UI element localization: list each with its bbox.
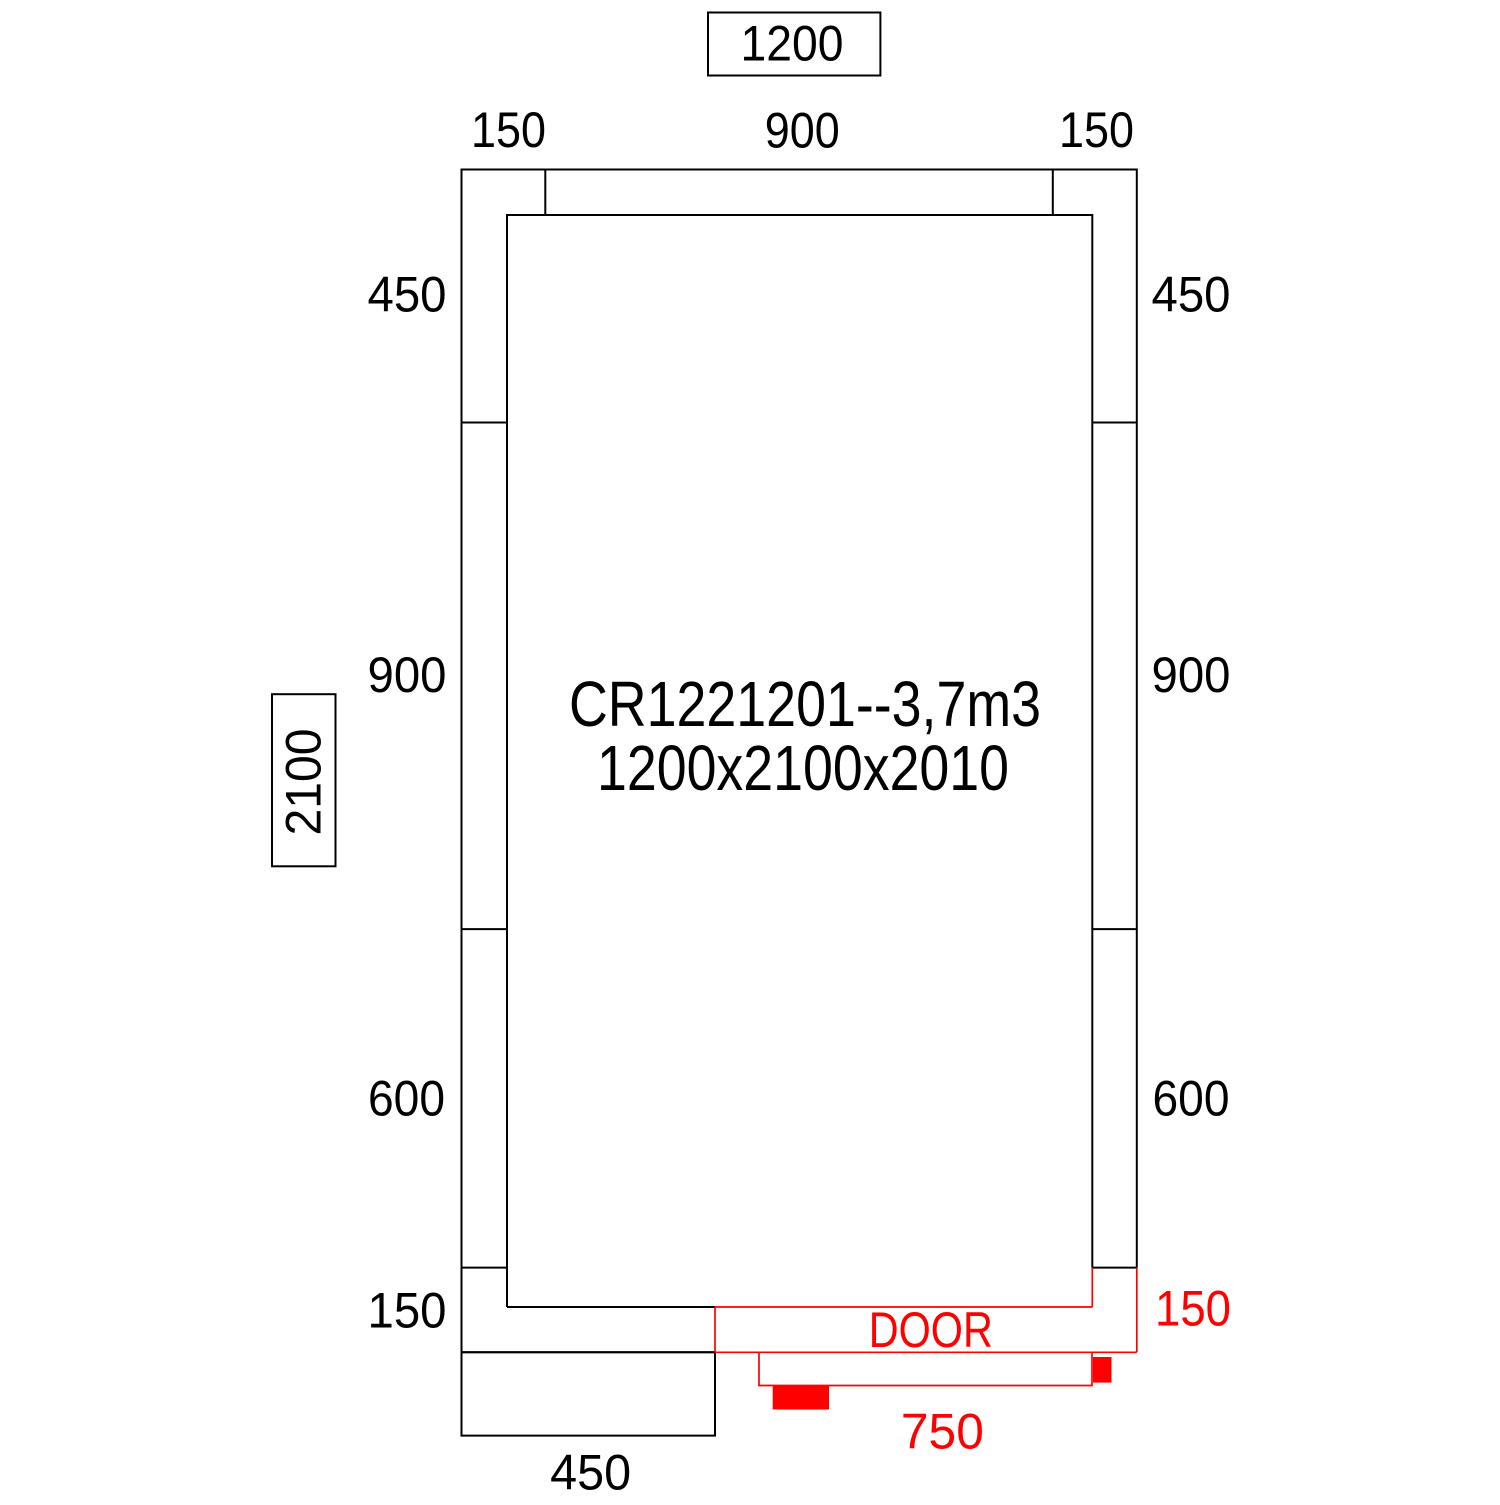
svg-text:900: 900 <box>765 103 840 159</box>
svg-text:750: 750 <box>901 1403 984 1459</box>
svg-text:900: 900 <box>368 647 447 703</box>
svg-text:150: 150 <box>1155 1280 1231 1336</box>
svg-text:600: 600 <box>368 1071 445 1127</box>
svg-text:2100: 2100 <box>276 729 332 836</box>
svg-text:600: 600 <box>1153 1071 1230 1127</box>
svg-text:150: 150 <box>368 1282 447 1338</box>
svg-text:150: 150 <box>471 102 546 158</box>
svg-text:150: 150 <box>1059 102 1134 158</box>
svg-text:450: 450 <box>550 1445 631 1500</box>
svg-text:450: 450 <box>368 267 447 323</box>
svg-text:450: 450 <box>1152 266 1231 322</box>
svg-text:CR1221201--3,7m3: CR1221201--3,7m3 <box>569 668 1041 740</box>
svg-text:900: 900 <box>1152 647 1231 703</box>
svg-text:1200x2100x2010: 1200x2100x2010 <box>597 732 1009 804</box>
svg-text:1200: 1200 <box>741 16 844 72</box>
svg-text:DOOR: DOOR <box>869 1302 993 1358</box>
